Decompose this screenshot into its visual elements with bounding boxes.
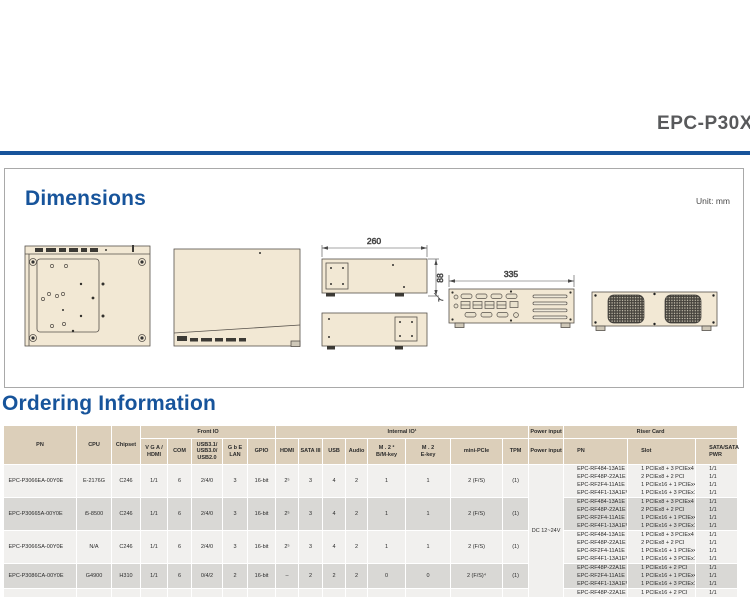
cell-gpio: 16-bit [248,564,276,589]
table-group-header-row: PN CPU Chipset Front IO Internal IO¹ Pow… [4,426,738,439]
col-header-mini-pcie: mini-PCIe [451,439,503,465]
cell-chipset: C246 [112,498,141,531]
cell-tpm: (1) [503,564,529,589]
cell-gpio: 16-bit [248,531,276,564]
cell-tpm: (1) [503,498,529,531]
cell-riser-sata: 1/1 [696,547,738,555]
cell-riser-pn: EPC-RF2F4-11A1E [564,547,628,555]
col-header-usb-front: USB3.1/ USB3.0/ USB2.0 [192,439,223,465]
cell-riser-slot: 1 PCIEx8 + 3 PCIEx4 [628,498,696,507]
cell-usb: 2 [323,564,346,589]
cell-gbe-lan: 3 [223,465,248,498]
cell-gbe-lan: 3 [223,498,248,531]
col-header-m2-e: M . 2 E-key [406,439,451,465]
cell-riser-pn: EPC-RF484-13A1E [564,465,628,474]
cell-m2-bm [368,589,406,597]
cell-gbe-lan: 3 [223,531,248,564]
cell-audio: 2 [346,465,368,498]
cell-m2-e [406,589,451,597]
dim-foot-label: 7 [439,298,445,302]
cell-tpm [503,589,529,597]
cell-riser-pn: EPC-RF48P-22A1E [564,589,628,597]
cell-chipset: C246 [112,465,141,498]
cell-riser-pn: EPC-RF4F1-13A1E³ [564,580,628,589]
cell-com: 6 [168,498,192,531]
cell-riser-sata: 1/1 [696,481,738,489]
cell-riser-pn: EPC-RF48P-22A1E [564,473,628,481]
cell-riser-slot: 1 PCIEx16 + 2 PCI [628,589,696,597]
cell-com [168,589,192,597]
col-header-gbe-lan: G b E LAN [223,439,248,465]
cell-mini-pcie: 2 (F/S)⁴ [451,564,503,589]
fan-grille-left [608,295,644,323]
cell-sata3: 3 [299,498,323,531]
col-header-riser-sata: SATA/SATA PWR [696,439,738,465]
cell-riser-pn: EPC-RF2F4-11A1E [564,481,628,489]
cell-riser-pn: EPC-RF4F1-13A1E³ [564,489,628,498]
cell-pn: EPC-P3066EA-00Y0E [4,465,77,498]
dim-335: 335 [449,269,574,287]
cell-gpio: 16-bit [248,498,276,531]
dim-width-label: 260 [367,236,381,246]
cell-m2-e: 1 [406,465,451,498]
cell-audio [346,589,368,597]
cell-sata3: 3 [299,531,323,564]
cell-riser-sata: 1/1 [696,514,738,522]
cell-audio: 2 [346,498,368,531]
cell-riser-pn: EPC-RF4F1-13A1E³ [564,555,628,564]
cell-hdmi: 2⁵ [276,465,299,498]
cell-usb: 4 [323,465,346,498]
table-row: EPC-P3086CA-00Y0EG4900H3101/160/4/2216-b… [4,564,738,573]
col-header-m2-bm: M . 2 ² B/M-key [368,439,406,465]
table-row: EPC-RF48P-22A1E1 PCIEx16 + 2 PCI1/1 [4,589,738,597]
cell-m2-e: 1 [406,498,451,531]
col-header-gpio: GPIO [248,439,276,465]
rear-panel-drawing [592,292,717,331]
cell-usb [323,589,346,597]
cell-pn: EPC-P3066SA-00Y0E [4,531,77,564]
cell-usb-front: 0/4/2 [192,564,223,589]
cell-riser-pn: EPC-RF484-13A1E [564,498,628,507]
group-header-riser-card: Riser Card [564,426,738,439]
cell-cpu: N/A [77,531,112,564]
cell-m2-bm: 1 [368,498,406,531]
cell-m2-bm: 1 [368,465,406,498]
col-header-hdmi: HDMI [276,439,299,465]
cell-m2-bm: 1 [368,531,406,564]
col-header-power-input: Power input [529,439,564,465]
top-view-drawing [25,245,150,346]
cell-riser-sata: 1/1 [696,498,738,507]
ordering-table-body: EPC-P3066EA-00Y0EE-2176GC2461/162/4/0316… [4,465,738,597]
cell-usb-front [192,589,223,597]
cell-riser-pn: EPC-RF48P-22A1E [564,506,628,514]
cell-riser-sata: 1/1 [696,589,738,597]
cell-riser-sata: 1/1 [696,531,738,540]
cell-riser-slot: 2 PCIEx8 + 2 PCI [628,506,696,514]
cell-riser-pn: EPC-RF48P-22A1E [564,564,628,573]
cell-riser-pn: EPC-RF484-13A1E [564,531,628,540]
cell-riser-slot: 1 PCIEx16 + 1 PCIEx4 [628,572,696,580]
cell-chipset: H310 [112,564,141,589]
cell-usb-front: 2/4/0 [192,498,223,531]
cell-usb-front: 2/4/0 [192,465,223,498]
cell-riser-sata: 1/1 [696,572,738,580]
cell-tpm: (1) [503,465,529,498]
cell-sata3: 3 [299,465,323,498]
cell-mini-pcie [451,589,503,597]
cell-com: 6 [168,465,192,498]
datasheet-page: { "page": { "title": "EPC-P30X0", "accen… [0,0,750,591]
cell-riser-slot: 1 PCIEx16 + 1 PCIEx4 [628,514,696,522]
table-row: EPC-P3066SA-00Y0EN/AC2461/162/4/0316-bit… [4,531,738,540]
cell-riser-sata: 1/1 [696,539,738,547]
dimension-drawings: 260 88 7 [5,169,743,387]
cell-riser-slot: 1 PCIEx16 + 3 PCIEx1 [628,555,696,564]
col-header-audio: Audio [346,439,368,465]
dim-length-label: 335 [504,269,518,279]
cell-gpio: 16-bit [248,465,276,498]
cell-mini-pcie: 2 (F/S) [451,465,503,498]
cell-pn: EPC-P3086CA-00Y0E [4,564,77,589]
cell-riser-slot: 2 PCIEx8 + 2 PCI [628,473,696,481]
cell-tpm: (1) [503,531,529,564]
cell-usb: 4 [323,498,346,531]
cell-cpu [77,589,112,597]
cell-riser-slot: 1 PCIEx8 + 3 PCIEx4 [628,531,696,540]
front-small-view-drawing [322,259,427,350]
dimensions-section: Dimensions Unit: mm [4,168,744,388]
cell-riser-sata: 1/1 [696,564,738,573]
cell-hdmi: 2⁵ [276,531,299,564]
col-header-sata3: SATA III [299,439,323,465]
cell-cpu: E-2176G [77,465,112,498]
dim-7: 7 [434,293,445,302]
group-header-power-input: Power input [529,426,564,439]
cell-riser-slot: 2 PCIEx8 + 2 PCI [628,539,696,547]
cell-mini-pcie: 2 (F/S) [451,531,503,564]
col-header-tpm: TPM [503,439,529,465]
cell-chipset [112,589,141,597]
cell-mini-pcie: 2 (F/S) [451,498,503,531]
group-header-front-io: Front IO [141,426,276,439]
cell-riser-pn: EPC-RF2F4-11A1E [564,572,628,580]
cell-riser-sata: 1/1 [696,506,738,514]
cell-gbe-lan [223,589,248,597]
cell-pn [4,589,77,597]
cell-hdmi: 2⁵ [276,498,299,531]
cell-vga-hdmi: 1/1 [141,465,168,498]
side-view-drawing [174,249,300,347]
cell-sata3: 2 [299,564,323,589]
title-divider [0,151,750,155]
cell-gbe-lan: 2 [223,564,248,589]
cell-pn: EPC-P30665A-00Y0E [4,498,77,531]
col-header-riser-pn: PN [564,439,628,465]
cell-riser-pn: EPC-RF48P-22A1E [564,539,628,547]
cell-riser-sata: 1/1 [696,580,738,589]
cell-usb: 4 [323,531,346,564]
cell-riser-slot: 1 PCIEx16 + 1 PCIEx4 [628,481,696,489]
col-header-riser-slot: Slot [628,439,696,465]
cell-hdmi: – [276,564,299,589]
dim-260: 260 [322,236,427,257]
cell-power-input: DC 12~24V [529,465,564,597]
cell-riser-slot: 1 PCIEx16 + 2 PCI [628,564,696,573]
col-header-pn: PN [4,426,77,465]
cell-riser-slot: 1 PCIEx16 + 1 PCIEx4 [628,547,696,555]
col-header-com: COM [168,439,192,465]
cell-riser-sata: 1/1 [696,489,738,498]
cell-cpu: i5-8500 [77,498,112,531]
cell-m2-e: 1 [406,531,451,564]
cell-chipset: C246 [112,531,141,564]
cell-riser-pn: EPC-RF2F4-11A1E [564,514,628,522]
group-header-internal-io: Internal IO¹ [276,426,529,439]
cell-riser-slot: 1 PCIEx16 + 3 PCIEx1 [628,522,696,531]
front-panel-drawing [449,289,574,328]
cell-riser-slot: 1 PCIEx16 + 3 PCIEx1 [628,489,696,498]
col-header-vga-hdmi: V G A / HDMI [141,439,168,465]
fan-grille-right [665,295,701,323]
cell-riser-sata: 1/1 [696,522,738,531]
cell-m2-e: 0 [406,564,451,589]
cell-vga-hdmi: 1/1 [141,498,168,531]
cell-com: 6 [168,564,192,589]
cell-com: 6 [168,531,192,564]
table-row: EPC-P30665A-00Y0Ei5-8500C2461/162/4/0316… [4,498,738,507]
cell-vga-hdmi: 1/1 [141,564,168,589]
cell-sata3 [299,589,323,597]
cell-usb-front: 2/4/0 [192,531,223,564]
cell-vga-hdmi: 1/1 [141,531,168,564]
col-header-cpu: CPU [77,426,112,465]
cell-gpio [248,589,276,597]
ordering-table: PN CPU Chipset Front IO Internal IO¹ Pow… [3,425,738,597]
ordering-heading: Ordering Information [2,392,216,416]
cell-riser-pn: EPC-RF4F1-13A1E³ [564,522,628,531]
col-header-usb: USB [323,439,346,465]
dim-height-label: 88 [435,273,445,283]
cell-riser-sata: 1/1 [696,465,738,474]
cell-vga-hdmi [141,589,168,597]
cell-hdmi [276,589,299,597]
cell-riser-slot: 1 PCIEx8 + 3 PCIEx4 [628,465,696,474]
table-row: EPC-P3066EA-00Y0EE-2176GC2461/162/4/0316… [4,465,738,474]
cell-m2-bm: 0 [368,564,406,589]
cell-cpu: G4900 [77,564,112,589]
cell-riser-slot: 1 PCIEx16 + 3 PCIEx1 [628,580,696,589]
cell-riser-sata: 1/1 [696,555,738,564]
col-header-chipset: Chipset [112,426,141,465]
product-title: EPC-P30X0 [657,113,750,135]
dim-88: 88 [428,259,445,296]
cell-audio: 2 [346,564,368,589]
cell-riser-sata: 1/1 [696,473,738,481]
cell-audio: 2 [346,531,368,564]
